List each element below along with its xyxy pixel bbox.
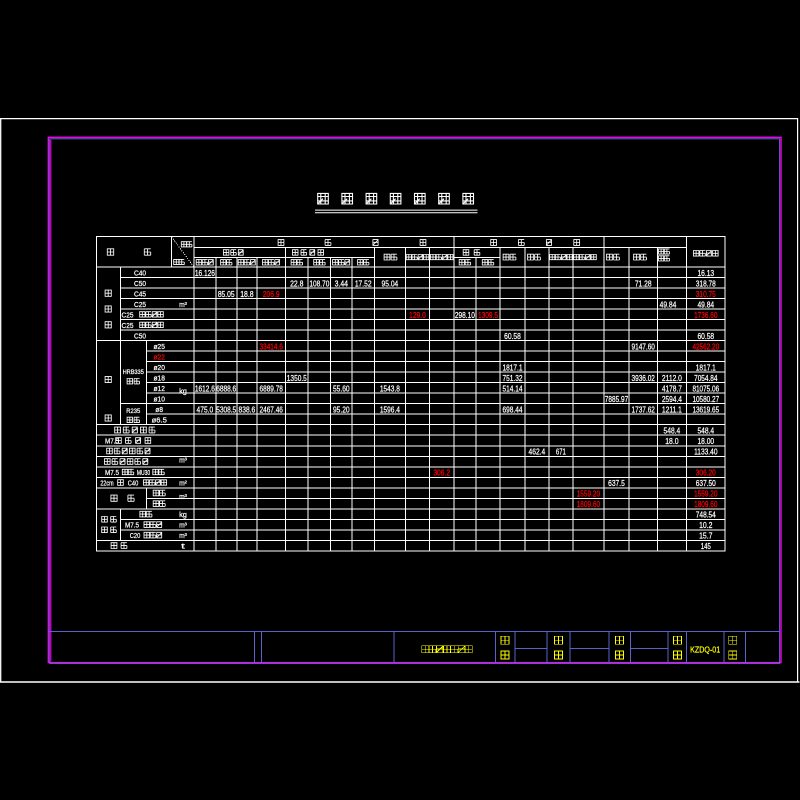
svg-text:kg: kg (179, 386, 187, 395)
svg-text:m²: m² (179, 479, 187, 488)
svg-text:1543.8: 1543.8 (380, 384, 400, 393)
svg-text:514.14: 514.14 (503, 384, 523, 393)
svg-text:1559.20: 1559.20 (694, 490, 718, 499)
svg-text:6889.78: 6889.78 (260, 384, 284, 393)
svg-text:306.20: 306.20 (696, 469, 716, 478)
svg-text:m³: m³ (179, 531, 187, 540)
svg-text:1350.5: 1350.5 (287, 374, 307, 383)
svg-text:m³: m³ (179, 300, 187, 309)
svg-text:9147.60: 9147.60 (632, 342, 656, 351)
svg-text:1612.6: 1612.6 (195, 384, 215, 393)
svg-text:838.6: 838.6 (239, 405, 256, 414)
svg-text:698.44: 698.44 (503, 405, 523, 414)
svg-text:C50: C50 (134, 331, 146, 340)
svg-text:ø18: ø18 (154, 373, 165, 382)
svg-text:85.05: 85.05 (218, 290, 235, 299)
svg-text:ø6.5: ø6.5 (152, 415, 167, 424)
svg-text:ø8: ø8 (155, 405, 163, 414)
svg-text:22.8: 22.8 (290, 279, 304, 288)
svg-text:M7.5: M7.5 (105, 439, 119, 446)
svg-text:1211.1: 1211.1 (662, 405, 682, 414)
svg-text:C40: C40 (134, 268, 146, 277)
svg-text:M7.5: M7.5 (105, 470, 119, 477)
svg-text:kg: kg (179, 510, 187, 519)
svg-text:C25: C25 (122, 310, 134, 319)
svg-text:129.0: 129.0 (409, 311, 426, 320)
svg-text:ø12: ø12 (154, 384, 165, 393)
svg-text:18.0: 18.0 (665, 437, 679, 446)
svg-text:55.60: 55.60 (333, 384, 350, 393)
svg-text:ø22: ø22 (154, 352, 165, 361)
svg-text:637.5: 637.5 (608, 479, 625, 488)
svg-text:548.4: 548.4 (664, 426, 681, 435)
svg-text:60.58: 60.58 (504, 332, 521, 341)
svg-text:C25: C25 (134, 300, 146, 309)
svg-text:1737.62: 1737.62 (632, 405, 656, 414)
svg-text:475.0: 475.0 (197, 405, 214, 414)
svg-text:t: t (181, 542, 185, 551)
svg-text:5308.5: 5308.5 (216, 405, 236, 414)
svg-text:318.78: 318.78 (696, 279, 716, 288)
svg-text:1809.60: 1809.60 (694, 500, 718, 509)
svg-text:C45: C45 (134, 289, 146, 298)
svg-text:306.2: 306.2 (433, 469, 450, 478)
svg-text:7054.84: 7054.84 (694, 374, 718, 383)
svg-text:42562.20: 42562.20 (692, 342, 719, 351)
svg-text:ø10: ø10 (154, 394, 165, 403)
svg-text:ø25: ø25 (154, 342, 165, 351)
svg-text:16.126: 16.126 (195, 269, 215, 278)
svg-text:m³: m³ (179, 521, 187, 530)
svg-text:MU30: MU30 (137, 470, 150, 477)
svg-text:1817.1: 1817.1 (503, 363, 523, 372)
svg-text:298.10: 298.10 (455, 311, 475, 320)
svg-text:71.28: 71.28 (635, 279, 652, 288)
svg-text:C20: C20 (130, 533, 141, 540)
svg-text:16.13: 16.13 (697, 269, 714, 278)
svg-text:15.7: 15.7 (699, 532, 713, 541)
svg-text:748.54: 748.54 (696, 511, 716, 520)
svg-text:1309.5: 1309.5 (478, 311, 498, 320)
svg-text:81075.06: 81075.06 (692, 384, 719, 393)
svg-text:13619.65: 13619.65 (692, 405, 719, 414)
svg-text:1133.40: 1133.40 (694, 448, 718, 457)
svg-text:C40: C40 (128, 481, 139, 488)
svg-text:ø20: ø20 (154, 363, 165, 372)
svg-text:95.20: 95.20 (333, 405, 350, 414)
svg-text:2594.4: 2594.4 (662, 395, 682, 404)
svg-text:6888.6: 6888.6 (216, 384, 236, 393)
svg-text:HRB335: HRB335 (123, 369, 144, 376)
svg-text:206.9: 206.9 (263, 290, 280, 299)
svg-text:671: 671 (556, 448, 566, 457)
svg-text:2467.46: 2467.46 (260, 405, 284, 414)
svg-text:22cm: 22cm (100, 481, 113, 488)
svg-text:49.84: 49.84 (697, 300, 714, 309)
svg-text:KZDQ-01: KZDQ-01 (690, 644, 720, 654)
svg-text:4178.7: 4178.7 (662, 384, 682, 393)
svg-text:751.32: 751.32 (503, 374, 523, 383)
svg-text:m³: m³ (179, 456, 187, 465)
svg-text:3936.02: 3936.02 (632, 374, 656, 383)
svg-text:M7.5: M7.5 (125, 523, 139, 530)
svg-text:18.00: 18.00 (697, 437, 714, 446)
svg-text:548.4: 548.4 (697, 426, 714, 435)
svg-text:7885.97: 7885.97 (605, 395, 629, 404)
svg-text:18.8: 18.8 (240, 290, 254, 299)
svg-text:1596.4: 1596.4 (380, 405, 400, 414)
svg-text:R235: R235 (126, 408, 140, 415)
svg-text:95.04: 95.04 (382, 279, 399, 288)
svg-text:49.84: 49.84 (660, 300, 677, 309)
svg-text:C25: C25 (122, 321, 134, 330)
svg-text:637.50: 637.50 (696, 479, 716, 488)
svg-text:108.70: 108.70 (309, 279, 329, 288)
svg-text:17.52: 17.52 (355, 279, 372, 288)
svg-text:3.44: 3.44 (335, 279, 349, 288)
svg-text:2112.0: 2112.0 (662, 374, 682, 383)
svg-text:m³: m³ (179, 492, 187, 501)
svg-text:10580.27: 10580.27 (692, 395, 719, 404)
svg-text:C50: C50 (134, 279, 146, 288)
svg-text:1559.20: 1559.20 (577, 490, 601, 499)
svg-text:1809.60: 1809.60 (577, 500, 601, 509)
svg-text:1817.1: 1817.1 (696, 363, 716, 372)
svg-text:145: 145 (701, 542, 711, 551)
svg-text:10.2: 10.2 (699, 521, 713, 530)
svg-text:33414.6: 33414.6 (260, 342, 284, 351)
svg-text:60.58: 60.58 (697, 332, 714, 341)
svg-text:462.4: 462.4 (529, 448, 546, 457)
svg-text:310.75: 310.75 (696, 290, 716, 299)
svg-text:1736.60: 1736.60 (694, 311, 718, 320)
